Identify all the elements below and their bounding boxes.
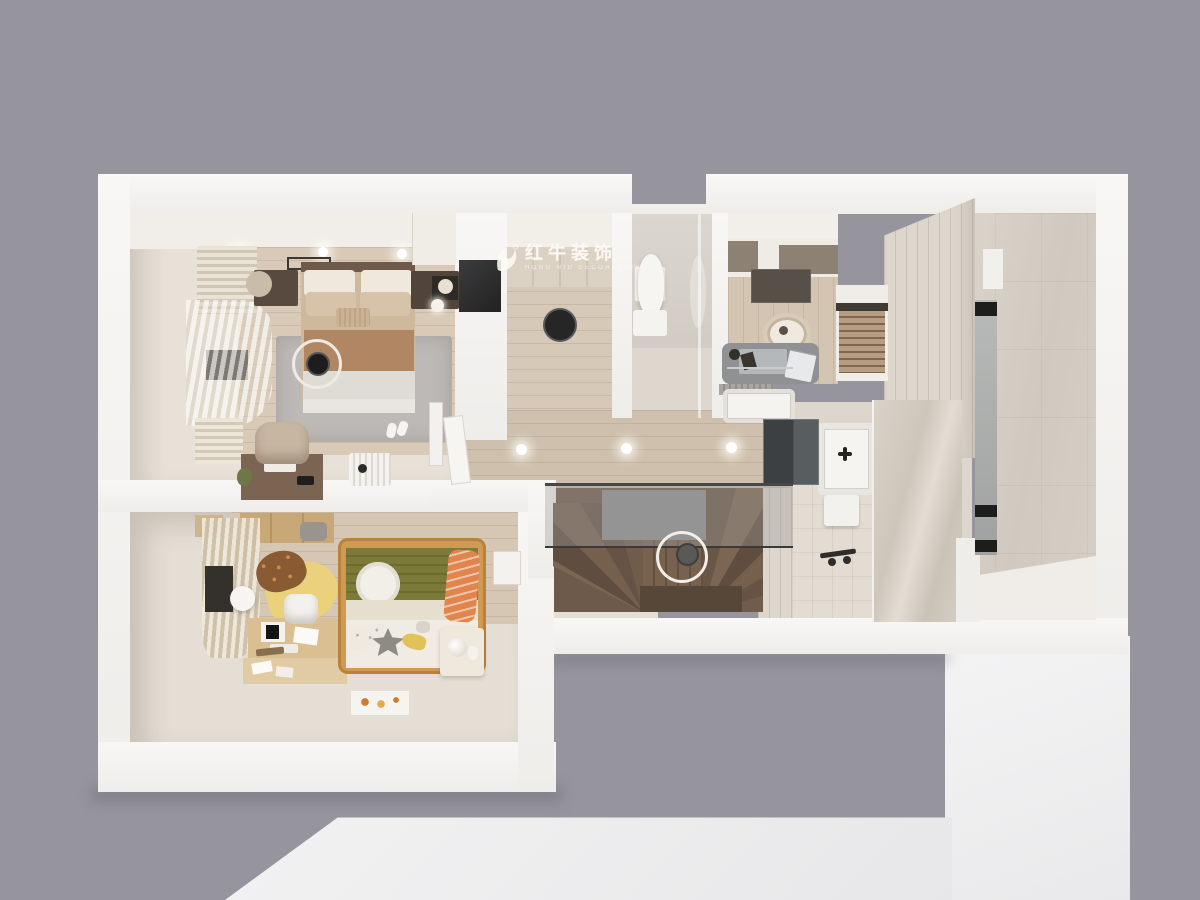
- watermark-subtitle: HONG NIU DECORATION: [525, 265, 642, 271]
- laptop: [784, 349, 816, 382]
- bow-plush: [416, 621, 430, 633]
- wall-left: [98, 174, 130, 774]
- ceiling-light: [397, 249, 407, 259]
- dark-cabinet-top: [751, 269, 811, 303]
- pendant-lamp-disc: [306, 352, 330, 376]
- toy: [468, 646, 478, 660]
- pen: [727, 367, 793, 369]
- radiator-dial: [358, 464, 367, 473]
- bed-bench: [303, 399, 415, 413]
- round-chair-center: [779, 326, 788, 335]
- shower-fixture-knob: [828, 558, 836, 566]
- ring-pendant-disc: [676, 543, 699, 566]
- ball-lamp: [448, 638, 467, 657]
- white-cabinet: [493, 551, 521, 585]
- window: [205, 566, 233, 612]
- papers: [276, 666, 294, 678]
- sphere-lamp: [246, 271, 272, 297]
- toilet-unit: [824, 495, 859, 526]
- small-lamp: [431, 299, 444, 312]
- wall-right: [1096, 174, 1128, 644]
- niche-bar: [975, 540, 997, 552]
- kids-chair: [284, 594, 318, 624]
- tablet-screen: [266, 625, 279, 639]
- camera-items: [729, 349, 740, 360]
- mirror-cabinet: [763, 419, 819, 485]
- glass-reflection: [690, 256, 706, 328]
- pendant-light: [543, 308, 577, 342]
- shoe-cabinet: [429, 402, 443, 466]
- stair-landing-dark: [640, 586, 742, 612]
- shower-fixture-knob: [843, 556, 851, 564]
- study-ceiling: [728, 213, 838, 241]
- ceiling-light: [516, 444, 527, 455]
- fox-pillow: [443, 549, 481, 624]
- curtain-blind: [195, 418, 243, 464]
- bedroom-ceiling: [130, 213, 455, 249]
- window-lintel: [836, 303, 888, 311]
- apartment-3d-floorplan: 红牛装饰 HONG NIU DECORATION: [0, 0, 1200, 900]
- floor-mat: [350, 690, 410, 716]
- glass-shower-wall: [872, 400, 962, 622]
- lower-floor-plane-right: [945, 636, 1130, 900]
- ceiling-light: [621, 443, 632, 454]
- wardrobe-panel: [728, 241, 758, 272]
- wood-blinds: [839, 311, 885, 373]
- lower-floor-plane: [225, 814, 952, 900]
- faucet: [843, 447, 847, 461]
- bathtub: [723, 389, 795, 423]
- toilet: [638, 254, 664, 316]
- sheer-curtain: [186, 300, 272, 426]
- framed-art-circle: [438, 279, 453, 294]
- papers: [293, 626, 319, 645]
- wardrobe: [412, 213, 456, 265]
- radiator: [349, 453, 391, 486]
- niche-bar: [975, 505, 997, 517]
- bag: [300, 522, 327, 541]
- wall-kids-bottom: [98, 742, 556, 792]
- bull-icon: [492, 243, 519, 275]
- ceiling-light: [726, 442, 737, 453]
- wall-bottom-right-section: [535, 618, 1128, 654]
- watermark-logo: 红牛装饰 HONG NIU DECORATION: [492, 243, 642, 275]
- accent-pillow: [336, 308, 370, 327]
- watermark-brand: 红牛装饰: [525, 243, 642, 263]
- paper-lantern: [230, 586, 255, 611]
- phone: [297, 476, 314, 485]
- wall-notch: [632, 174, 706, 204]
- niche-bar: [975, 302, 997, 316]
- toilet-tank: [633, 310, 667, 336]
- ceiling-light: [318, 247, 328, 257]
- desk-chair: [255, 422, 309, 464]
- wall-shelf: [983, 249, 1003, 289]
